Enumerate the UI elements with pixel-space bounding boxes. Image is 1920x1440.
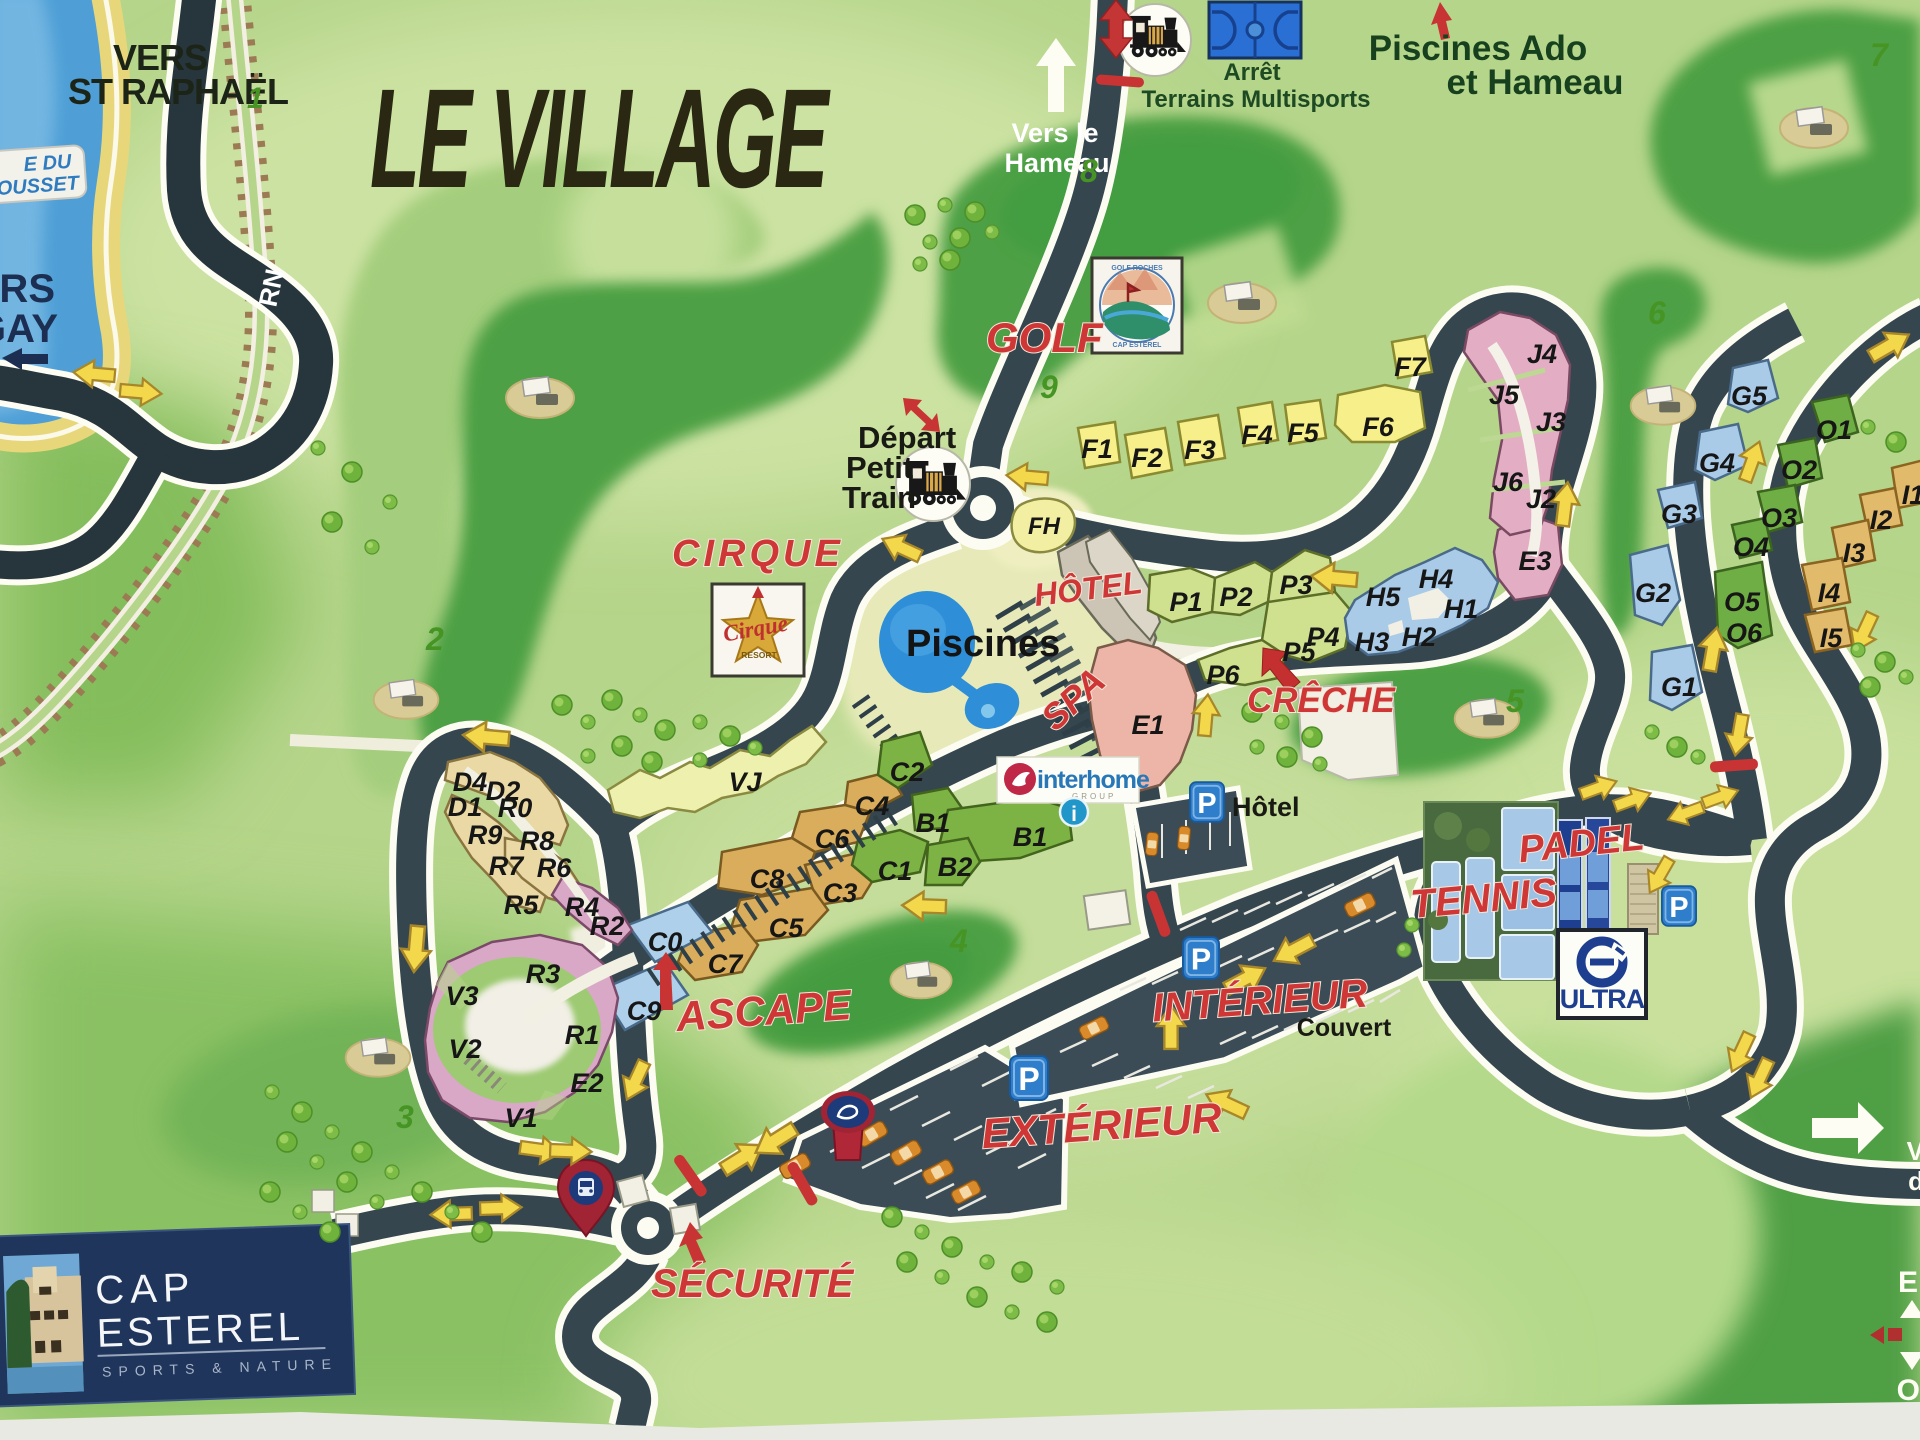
svg-text:F3: F3 — [1184, 435, 1216, 465]
svg-text:J5: J5 — [1489, 380, 1520, 410]
svg-text:O3: O3 — [1761, 503, 1797, 533]
svg-text:B1: B1 — [916, 808, 951, 838]
svg-text:G4: G4 — [1699, 448, 1735, 478]
svg-text:Arrêt: Arrêt — [1223, 59, 1280, 86]
svg-text:Vers le: Vers le — [1011, 118, 1098, 148]
svg-text:Train: Train — [842, 480, 916, 515]
svg-text:D1: D1 — [448, 792, 483, 822]
svg-text:R1: R1 — [565, 1020, 600, 1050]
svg-text:ERS: ERS — [0, 267, 55, 311]
svg-text:C1: C1 — [878, 856, 913, 886]
svg-text:Terrains Multisports: Terrains Multisports — [1142, 86, 1371, 113]
svg-text:et Hameau: et Hameau — [1446, 63, 1623, 102]
svg-text:G3: G3 — [1661, 499, 1697, 529]
svg-text:C6: C6 — [815, 824, 850, 854]
svg-text:F5: F5 — [1287, 418, 1319, 448]
svg-text:E1: E1 — [1131, 710, 1164, 740]
svg-text:R6: R6 — [537, 853, 572, 883]
svg-text:C0: C0 — [648, 927, 683, 957]
svg-text:G1: G1 — [1661, 672, 1697, 702]
svg-text:8: 8 — [1080, 153, 1098, 189]
svg-text:V2: V2 — [448, 1034, 481, 1064]
svg-text:J4: J4 — [1527, 339, 1557, 369]
svg-text:VJ: VJ — [728, 767, 762, 797]
svg-text:RESORT: RESORT — [741, 650, 777, 660]
svg-text:GOLF ROCHES: GOLF ROCHES — [1111, 265, 1163, 272]
svg-text:interhome: interhome — [1037, 766, 1150, 794]
svg-text:P6: P6 — [1206, 660, 1240, 690]
svg-text:3: 3 — [396, 1099, 414, 1135]
svg-text:R0: R0 — [498, 793, 533, 823]
svg-text:R2: R2 — [590, 911, 625, 941]
svg-text:5: 5 — [1506, 683, 1525, 719]
svg-text:F4: F4 — [1241, 420, 1273, 450]
svg-text:B2: B2 — [938, 852, 973, 882]
svg-text:C2: C2 — [890, 757, 925, 787]
svg-text:H4: H4 — [1419, 564, 1454, 594]
svg-text:CAP ESTEREL: CAP ESTEREL — [1113, 342, 1163, 349]
svg-text:O5: O5 — [1724, 587, 1761, 617]
svg-text:R8: R8 — [520, 826, 555, 856]
svg-text:E: E — [1898, 1266, 1918, 1299]
svg-text:R5: R5 — [504, 890, 539, 920]
svg-text:CIRQUE: CIRQUE — [672, 533, 844, 575]
svg-text:J2: J2 — [1526, 484, 1556, 514]
svg-text:H5: H5 — [1366, 582, 1401, 612]
svg-text:C8: C8 — [750, 864, 785, 894]
svg-text:d: d — [1908, 1166, 1920, 1196]
svg-text:Hôtel: Hôtel — [1232, 792, 1300, 822]
svg-text:FH: FH — [1028, 513, 1061, 540]
svg-text:6: 6 — [1648, 295, 1666, 331]
svg-text:I1: I1 — [1902, 480, 1920, 510]
svg-text:O2: O2 — [1781, 455, 1817, 485]
svg-text:i: i — [1071, 803, 1077, 826]
svg-text:R9: R9 — [468, 820, 503, 850]
svg-text:CAP: CAP — [95, 1265, 197, 1312]
svg-text:ESTEREL: ESTEREL — [96, 1305, 304, 1356]
svg-text:F7: F7 — [1394, 352, 1427, 382]
svg-text:I5: I5 — [1820, 623, 1844, 653]
svg-text:F6: F6 — [1362, 412, 1394, 442]
svg-text:O6: O6 — [1726, 618, 1763, 648]
svg-text:R3: R3 — [526, 959, 561, 989]
svg-text:E3: E3 — [1518, 546, 1551, 576]
svg-text:H3: H3 — [1355, 627, 1390, 657]
svg-text:GOLF: GOLF — [986, 314, 1104, 361]
svg-text:SÉCURITÉ: SÉCURITÉ — [651, 1261, 855, 1306]
svg-text:J3: J3 — [1536, 407, 1566, 437]
svg-text:2: 2 — [425, 621, 444, 657]
svg-text:ULTRA: ULTRA — [1560, 984, 1645, 1014]
svg-text:GAY: GAY — [0, 307, 58, 351]
svg-text:7: 7 — [1870, 37, 1890, 73]
svg-text:P1: P1 — [1169, 587, 1202, 617]
svg-text:CRÊCHE: CRÊCHE — [1247, 680, 1396, 720]
svg-text:O1: O1 — [1816, 415, 1852, 445]
svg-text:C3: C3 — [823, 878, 858, 908]
svg-text:P3: P3 — [1279, 570, 1312, 600]
svg-text:Piscines: Piscines — [906, 623, 1060, 665]
svg-text:9: 9 — [1040, 369, 1058, 405]
svg-text:I2: I2 — [1870, 505, 1893, 535]
svg-text:C7: C7 — [708, 949, 744, 979]
svg-text:I3: I3 — [1843, 538, 1866, 568]
svg-text:J6: J6 — [1493, 467, 1524, 497]
svg-text:G2: G2 — [1635, 578, 1671, 608]
svg-text:C9: C9 — [627, 996, 662, 1026]
svg-text:P5: P5 — [1282, 637, 1316, 667]
svg-text:F1: F1 — [1081, 434, 1113, 464]
svg-text:4: 4 — [949, 923, 968, 959]
svg-text:H1: H1 — [1444, 594, 1479, 624]
svg-text:B1: B1 — [1013, 822, 1048, 852]
svg-text:V1: V1 — [504, 1103, 537, 1133]
svg-text:G5: G5 — [1731, 381, 1768, 411]
svg-text:1: 1 — [247, 82, 264, 115]
svg-text:C5: C5 — [769, 913, 804, 943]
svg-text:C4: C4 — [855, 791, 890, 821]
svg-text:V3: V3 — [445, 981, 478, 1011]
svg-text:E2: E2 — [570, 1068, 603, 1098]
svg-text:O4: O4 — [1733, 532, 1769, 562]
svg-text:P2: P2 — [1219, 582, 1252, 612]
svg-text:H2: H2 — [1402, 622, 1437, 652]
svg-text:F2: F2 — [1131, 443, 1163, 473]
svg-text:I4: I4 — [1818, 578, 1841, 608]
svg-text:LE VILLAGE: LE VILLAGE — [370, 60, 831, 218]
svg-text:V: V — [1907, 1136, 1920, 1166]
svg-text:R7: R7 — [489, 851, 525, 881]
